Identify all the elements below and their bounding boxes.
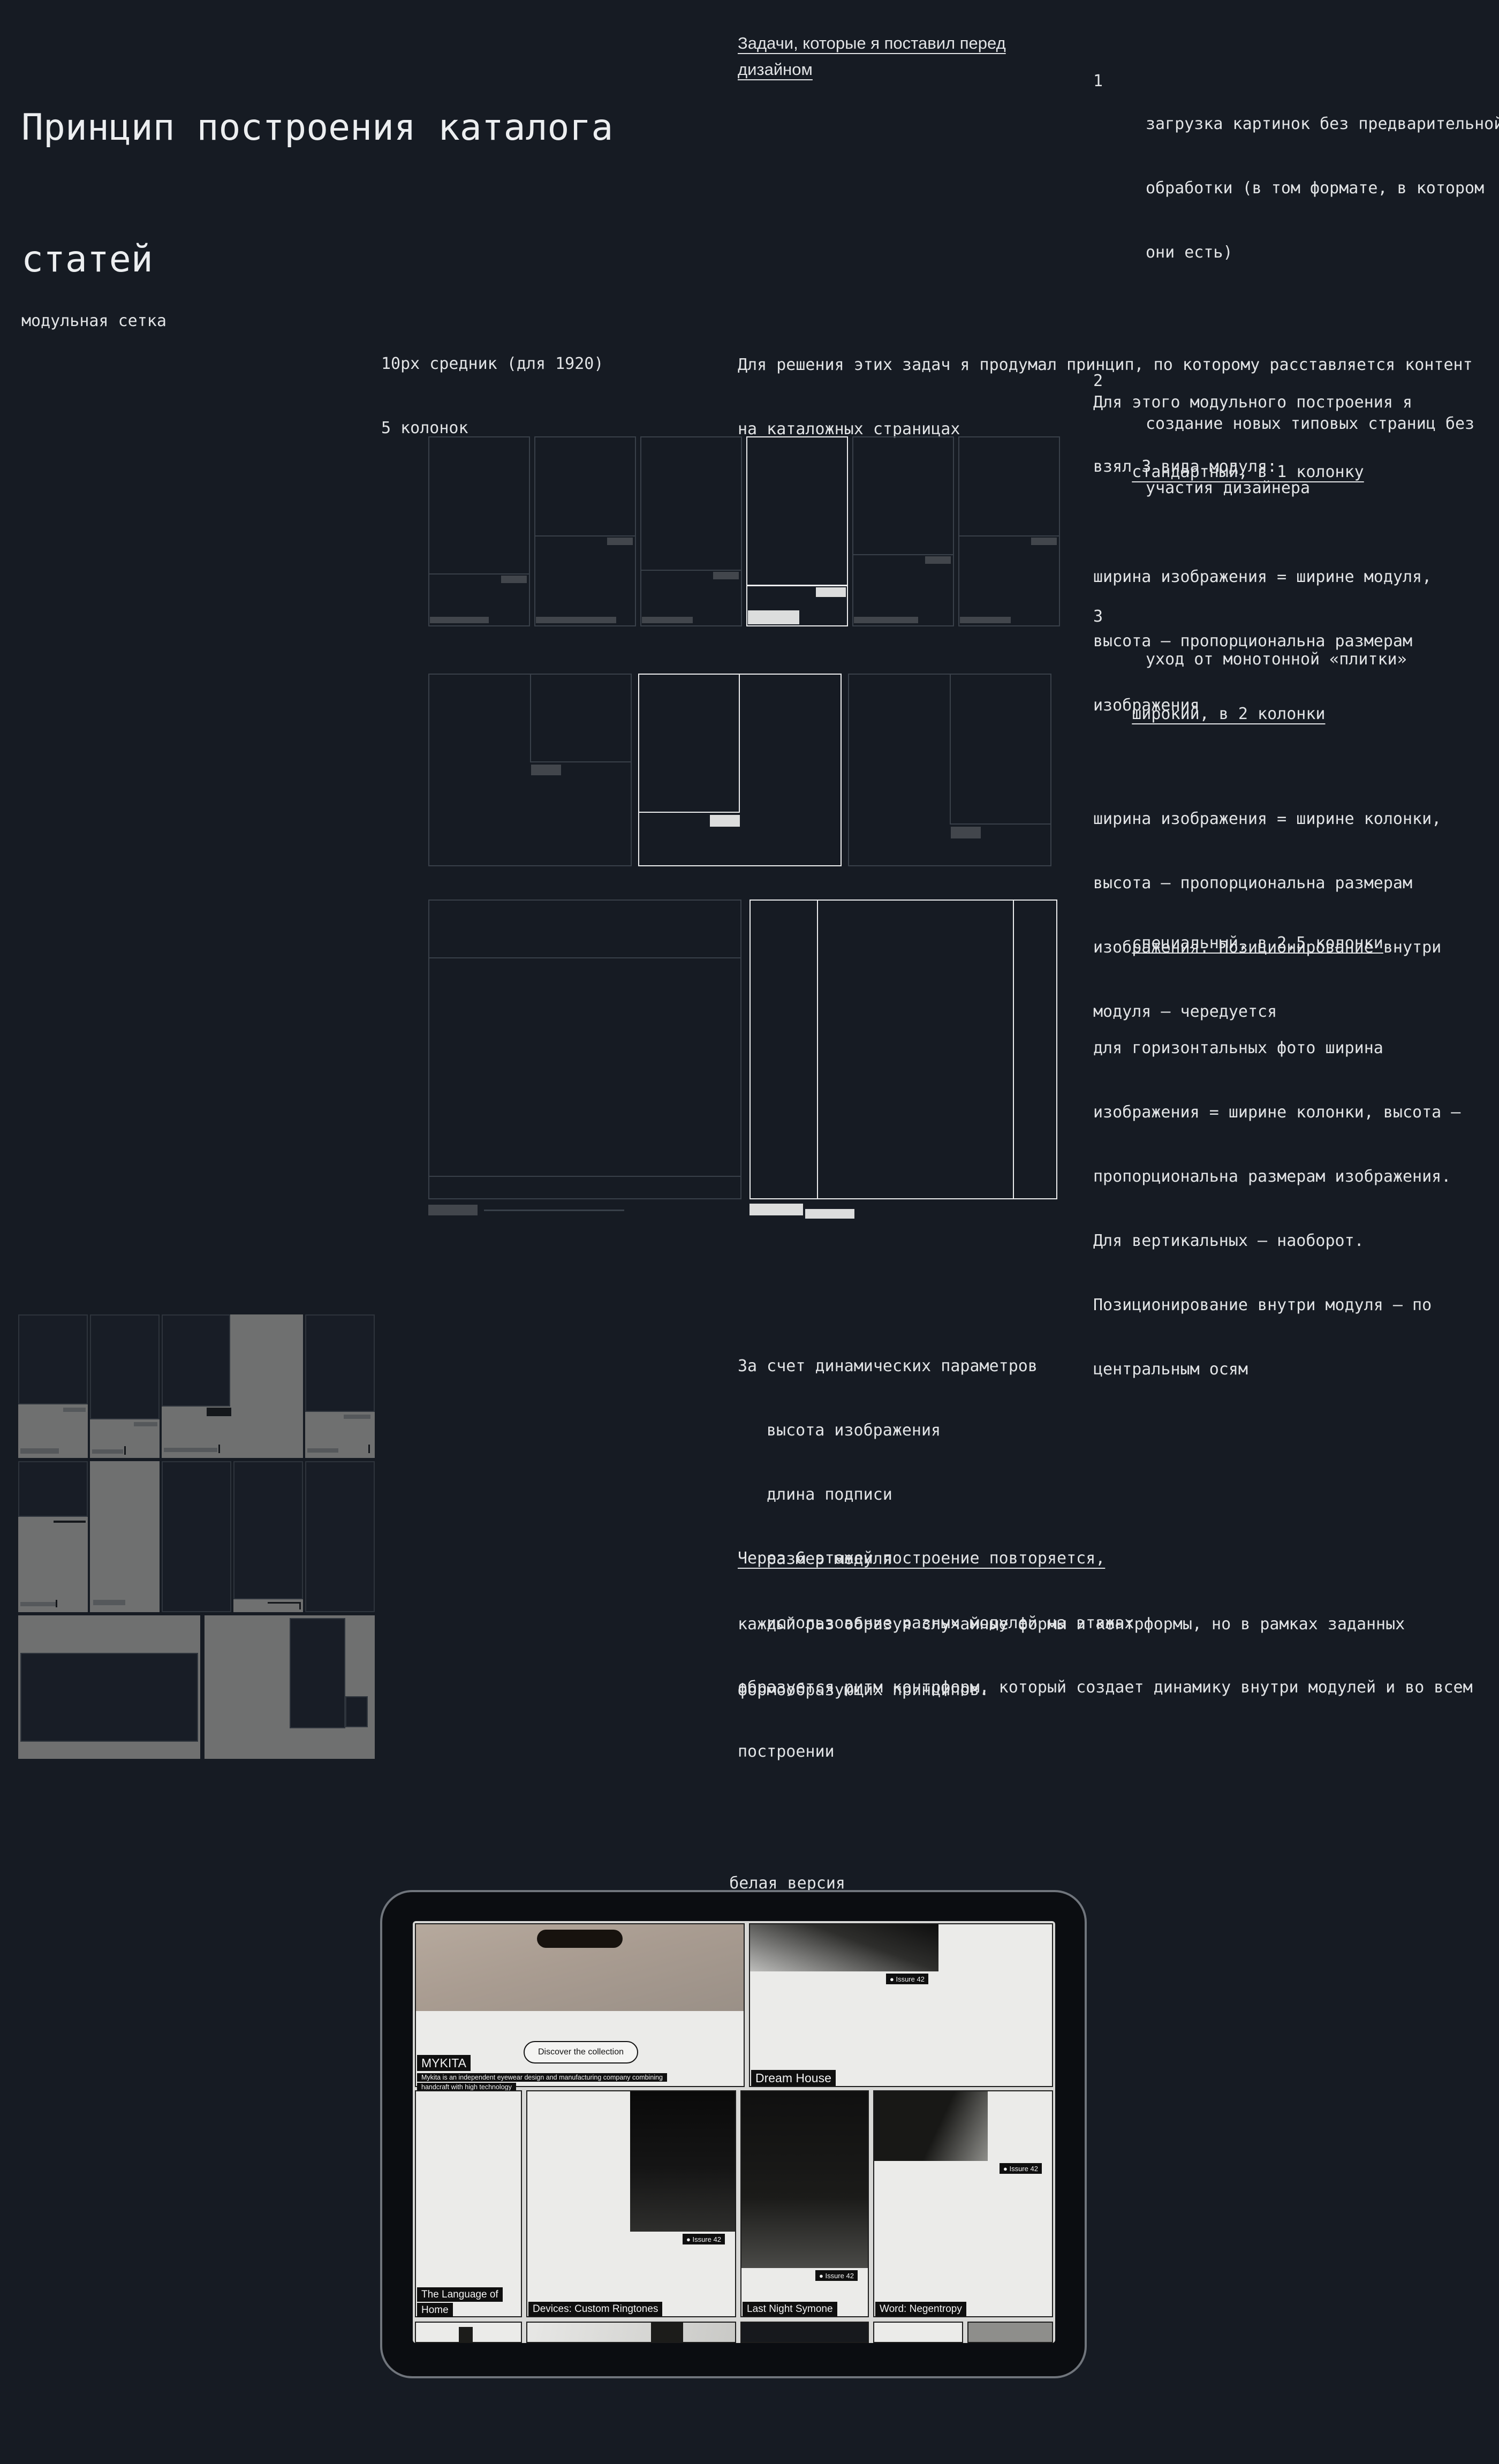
caption-placeholder	[607, 538, 633, 545]
card-title: Last Night Symone	[743, 2302, 837, 2316]
staircase-photo	[527, 2323, 735, 2342]
floor-b-col-5-image	[305, 1461, 375, 1612]
wide-card-2-image	[638, 674, 740, 813]
special-card-2-frame-highlighted	[749, 900, 1057, 1199]
standard-col-2-frame	[534, 436, 636, 626]
caption-placeholder	[531, 765, 561, 775]
caption-placeholder	[951, 827, 981, 838]
standard-col-4-frame-highlighted	[746, 436, 848, 626]
card-title-line: The Language of	[417, 2287, 503, 2302]
camera-photo	[459, 2327, 473, 2343]
divider	[640, 570, 742, 571]
standard-col-6-frame	[958, 436, 1060, 626]
caption-placeholder	[710, 815, 740, 827]
card-title-line: Home	[417, 2303, 453, 2317]
tick	[124, 1446, 126, 1455]
caption-placeholder	[307, 1448, 338, 1453]
pattern-photo	[651, 2323, 683, 2342]
caption-placeholder	[20, 1602, 56, 1606]
caption-placeholder	[92, 1449, 123, 1454]
catalog-card-partial	[967, 2322, 1053, 2343]
case-study-page: Принцип построения каталога статей Задач…	[0, 0, 1499, 2464]
catalog-card-partial	[526, 2322, 736, 2343]
tablet-mockup: Discover the collection MYKITA Mykita is…	[380, 1890, 1087, 2378]
caption-placeholder	[925, 556, 951, 564]
caption-placeholder	[642, 617, 693, 623]
card-title: MYKITA	[417, 2055, 471, 2071]
card-title: Word: Negentropy	[875, 2302, 966, 2316]
floor-c-left-image	[20, 1653, 198, 1742]
caption-placeholder	[805, 1209, 854, 1219]
tick	[299, 1602, 301, 1609]
catalog-card-negentropy: ● Issure 42 Word: Negentropy	[873, 2090, 1053, 2317]
catalog-card-symone: ● Issure 42 Last Night Symone	[740, 2090, 869, 2317]
divider	[746, 585, 848, 586]
tablet-screen: Discover the collection MYKITA Mykita is…	[413, 1921, 1055, 2343]
wide-card-3-image	[950, 674, 1051, 825]
caption-placeholder	[207, 1408, 231, 1416]
special-card-1-frame	[428, 900, 741, 1199]
caption-placeholder	[164, 1448, 217, 1452]
floor-b-col-2-space	[90, 1461, 160, 1612]
caption-placeholder	[749, 1204, 803, 1215]
catalog-card-partial	[415, 2322, 522, 2343]
caption-placeholder	[344, 1415, 370, 1419]
catalog-card-dream-house: ● Issure 42 Dream House	[749, 1923, 1053, 2087]
caption-placeholder	[268, 1602, 301, 1604]
floor-c-right-image-step	[345, 1696, 368, 1727]
floor-a-col-1-image	[18, 1314, 88, 1404]
caption-placeholder	[854, 617, 918, 623]
card-description-line: Mykita is an independent eyewear design …	[417, 2073, 667, 2082]
card-title: Dream House	[751, 2070, 836, 2086]
caption-placeholder	[536, 617, 616, 623]
caption-placeholder	[1031, 538, 1057, 545]
caption-placeholder	[134, 1422, 157, 1426]
divider	[534, 535, 636, 536]
issue-badge: ● Issure 42	[815, 2270, 858, 2281]
tick	[368, 1445, 370, 1453]
catalog-card-partial	[873, 2322, 963, 2343]
caption-placeholder	[63, 1408, 86, 1412]
floor-a-col-5-image	[305, 1314, 375, 1412]
standard-col-3-frame	[640, 436, 742, 626]
divider	[817, 900, 818, 1199]
catalog-card-partial	[740, 2322, 869, 2343]
tick	[56, 1600, 57, 1607]
caption-placeholder	[748, 610, 799, 624]
caption-placeholder	[960, 617, 1011, 623]
floor-b-col-4-image	[233, 1461, 303, 1599]
divider	[1013, 900, 1014, 1199]
floor-b-col-1-image	[18, 1461, 88, 1517]
caption-line	[484, 1210, 624, 1211]
divider	[428, 957, 741, 958]
catalog-card-language-home: The Language of Home	[415, 2090, 522, 2317]
floor-a-wide-image	[162, 1314, 230, 1407]
floor-c-right-image	[290, 1618, 345, 1728]
divider	[428, 573, 530, 575]
caption-placeholder	[430, 617, 489, 623]
model-photo	[416, 1924, 744, 2011]
standard-col-5-frame	[852, 436, 954, 626]
discover-collection-button[interactable]: Discover the collection	[524, 2041, 638, 2064]
bw-portrait-photo	[750, 1924, 938, 1971]
caption-placeholder	[93, 1600, 125, 1605]
wide-card-1-image	[530, 674, 632, 762]
caption-placeholder	[713, 572, 739, 579]
standard-col-1-frame	[428, 436, 530, 626]
figure-photo	[741, 2091, 868, 2268]
catalog-card-devices: ● Issure 42 Devices: Custom Ringtones	[526, 2090, 736, 2317]
divider	[428, 1176, 741, 1177]
catalog-card-mykita: Discover the collection MYKITA Mykita is…	[415, 1923, 745, 2087]
floor-b-col-1-space	[18, 1517, 88, 1612]
caption-placeholder	[54, 1521, 86, 1523]
floor-b-col-4-space	[233, 1599, 303, 1612]
divider	[958, 535, 1060, 536]
floor-b-col-3-image	[162, 1461, 231, 1612]
floor-a-col-2-image	[90, 1314, 160, 1419]
sunglasses-shape	[537, 1930, 623, 1948]
tick	[218, 1445, 220, 1453]
glove-photo	[630, 2091, 735, 2232]
caption-placeholder	[428, 1205, 478, 1215]
caption-placeholder	[20, 1448, 59, 1454]
card-title: Devices: Custom Ringtones	[528, 2302, 662, 2316]
chair-photo	[874, 2091, 988, 2161]
issue-badge: ● Issure 42	[683, 2234, 725, 2244]
caption-placeholder	[816, 587, 846, 597]
caption-placeholder	[501, 576, 527, 583]
divider	[852, 554, 954, 555]
issue-badge: ● Issure 42	[886, 1974, 928, 1984]
issue-badge: ● Issure 42	[1000, 2163, 1042, 2174]
